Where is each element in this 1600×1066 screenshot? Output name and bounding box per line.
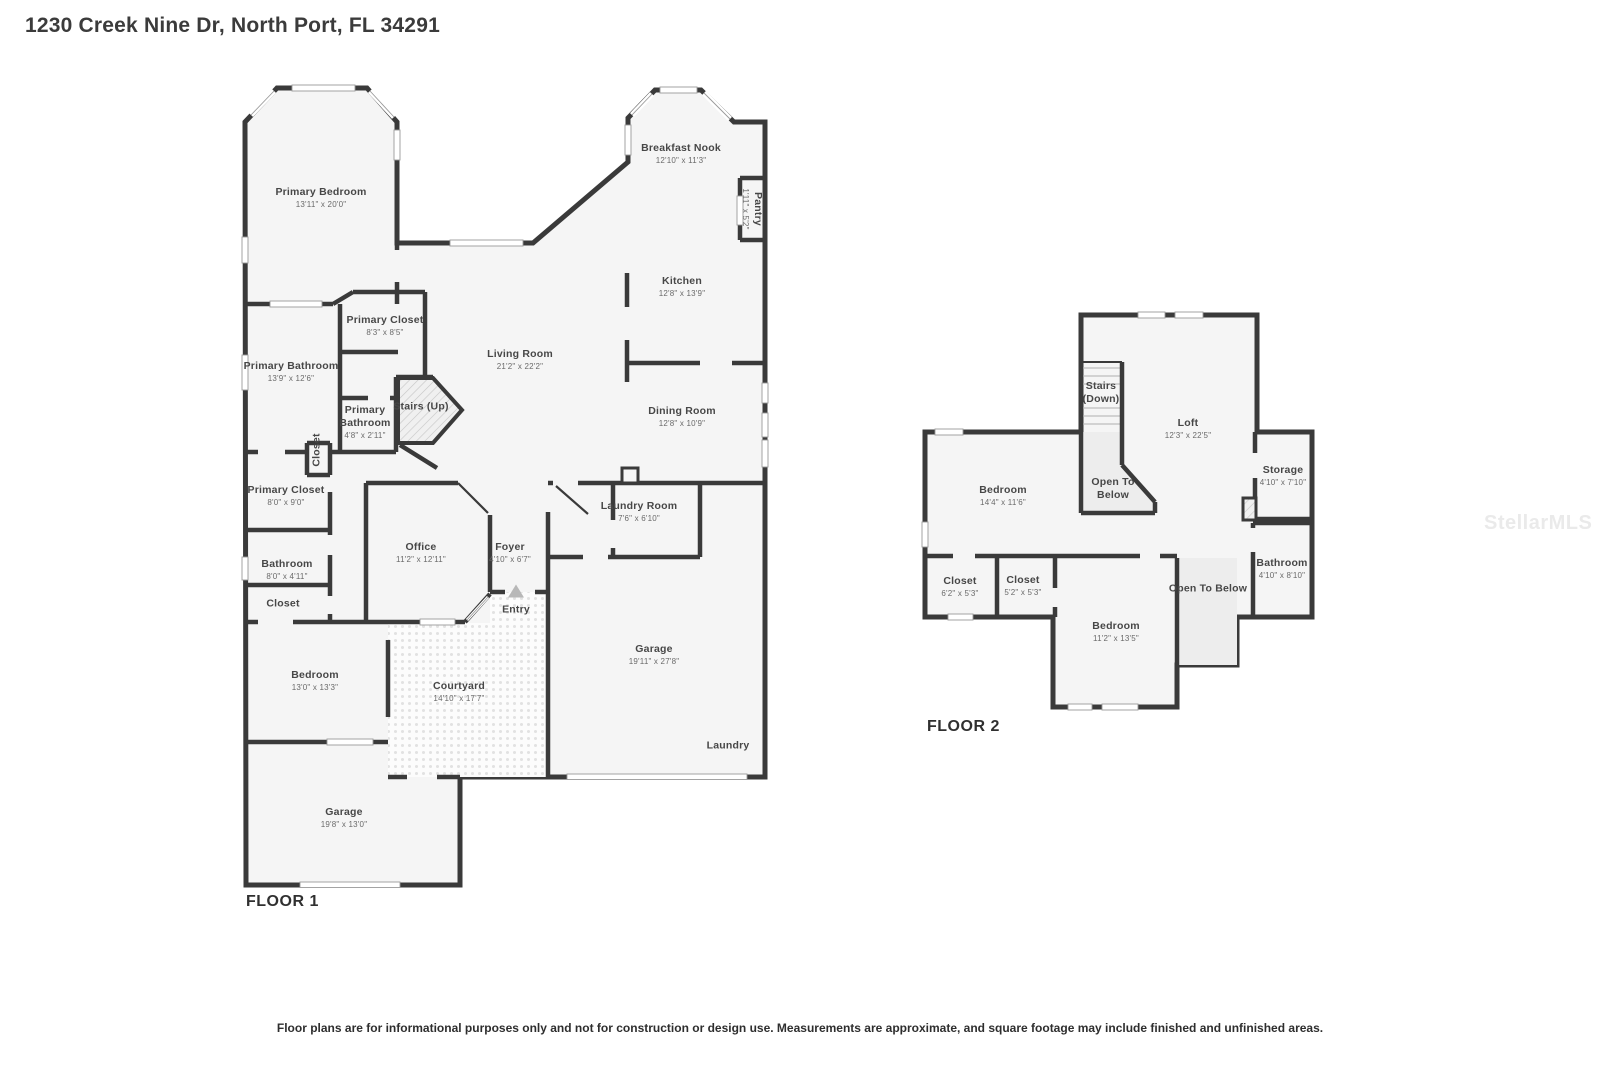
room-label-closet-2: Closet xyxy=(266,598,299,611)
watermark: StellarMLS xyxy=(1484,512,1592,535)
room-label-primary-closet-2: Primary Closet 8'0" x 9'0" xyxy=(248,484,325,508)
floor2-plan xyxy=(922,312,1312,710)
room-label-closet-vertical: Closet xyxy=(311,433,324,466)
room-label-bedroom-f2-lower: Bedroom 11'2" x 13'5" xyxy=(1092,620,1140,644)
room-label-garage-small: Garage 19'8" x 13'0" xyxy=(321,806,367,830)
room-label-office: Office 11'2" x 12'11" xyxy=(396,541,446,565)
room-label-primary-bedroom: Primary Bedroom 13'11" x 20'0" xyxy=(275,186,366,210)
room-label-stairs-up: Stairs (Up) xyxy=(393,401,448,414)
room-label-entry: Entry xyxy=(502,604,530,617)
floorplan-page: 1230 Creek Nine Dr, North Port, FL 34291… xyxy=(0,0,1600,1066)
room-label-kitchen: Kitchen 12'8" x 13'9" xyxy=(659,275,705,299)
room-label-living-room: Living Room 21'2" x 22'2" xyxy=(487,348,553,372)
room-label-open-to-below-upper: Open To Below xyxy=(1084,476,1142,502)
entry-direction-icon xyxy=(508,585,524,598)
room-label-dining-room: Dining Room 12'8" x 10'9" xyxy=(648,405,716,429)
room-label-laundry-room: Laundry Room 7'6" x 6'10" xyxy=(601,500,678,524)
room-label-primary-bathroom: Primary Bathroom 13'9" x 12'6" xyxy=(244,360,339,384)
room-label-pantry: Pantry 1'11" x 5'2" xyxy=(740,188,764,229)
room-label-primary-closet-1: Primary Closet 8'3" x 8'5" xyxy=(347,314,424,338)
room-label-garage-main: Garage 19'11" x 27'8" xyxy=(629,643,680,667)
room-label-primary-bathroom-small: Primary Bathroom 4'8" x 2'11" xyxy=(333,404,397,440)
room-label-closet-f2-2: Closet 5'2" x 5'3" xyxy=(1004,574,1041,598)
room-label-bathroom-f2: Bathroom 4'10" x 8'10" xyxy=(1256,557,1307,581)
room-label-storage: Storage 4'10" x 7'10" xyxy=(1260,464,1306,488)
room-label-loft: Loft 12'3" x 22'5" xyxy=(1165,417,1211,441)
floorplan-drawing xyxy=(0,0,1600,1066)
room-label-breakfast-nook: Breakfast Nook 12'10" x 11'3" xyxy=(641,142,721,166)
room-label-courtyard: Courtyard 14'10" x 17'7" xyxy=(433,680,485,704)
room-label-bedroom-f1: Bedroom 13'0" x 13'3" xyxy=(291,669,339,693)
floor2-label: FLOOR 2 xyxy=(927,718,1000,736)
floor1-label: FLOOR 1 xyxy=(246,893,319,911)
page-title: 1230 Creek Nine Dr, North Port, FL 34291 xyxy=(25,14,440,38)
room-label-stairs-down: Stairs (Down) xyxy=(1075,380,1127,406)
room-label-open-to-below-lower: Open To Below xyxy=(1169,583,1247,596)
room-label-bedroom-f2-left: Bedroom 14'4" x 11'6" xyxy=(979,484,1027,508)
room-label-foyer: Foyer 4'10" x 6'7" xyxy=(489,541,531,565)
disclaimer-text: Floor plans are for informational purpos… xyxy=(0,1021,1600,1035)
room-label-closet-f2-1: Closet 6'2" x 5'3" xyxy=(941,575,978,599)
room-label-bathroom: Bathroom 8'0" x 4'11" xyxy=(261,558,312,582)
room-label-laundry-text: Laundry xyxy=(707,740,750,753)
